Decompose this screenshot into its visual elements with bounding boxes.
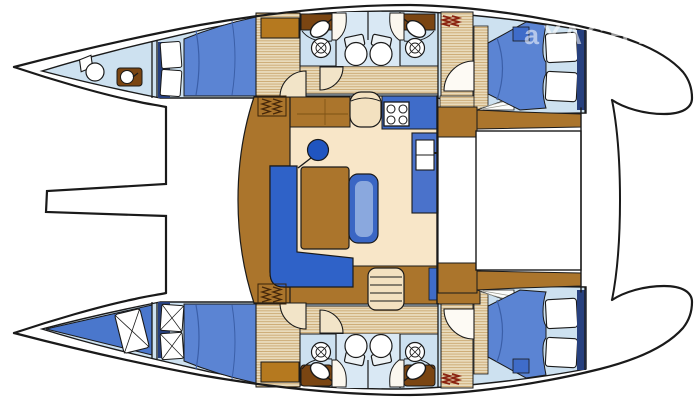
svg-text:aYACHTS: aYACHTS — [524, 20, 676, 50]
